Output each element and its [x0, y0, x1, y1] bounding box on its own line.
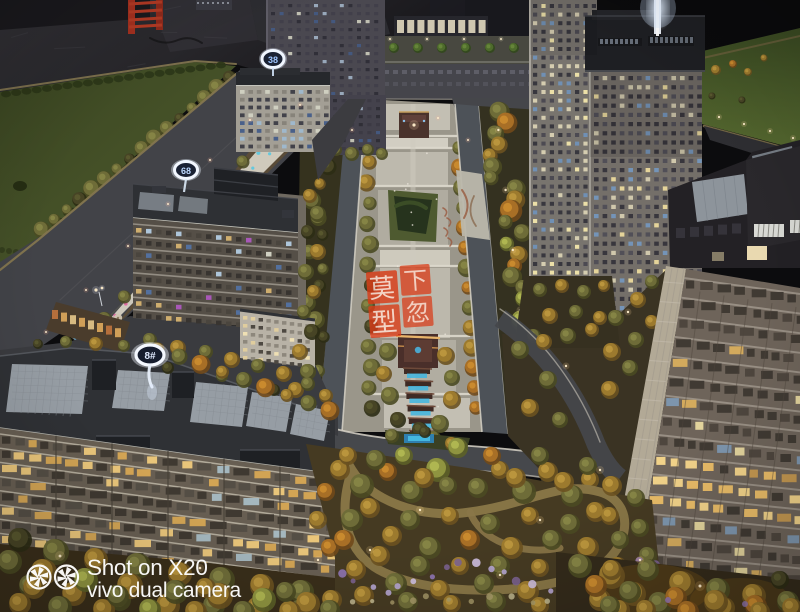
svg-text:vivo dual camera: vivo dual camera: [87, 579, 242, 602]
svg-text:Shot on X20: Shot on X20: [87, 555, 208, 580]
